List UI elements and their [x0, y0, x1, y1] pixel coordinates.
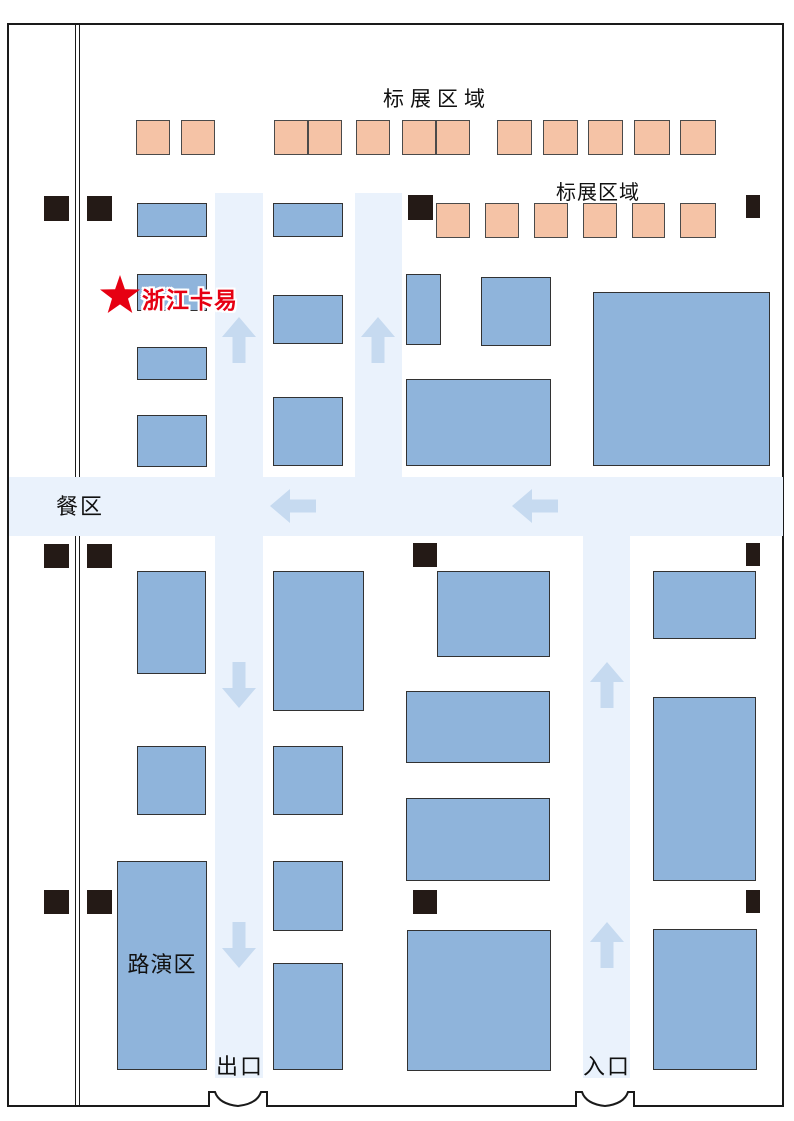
aisle	[355, 193, 402, 477]
standard-booth	[436, 203, 470, 238]
pillar	[44, 196, 69, 221]
exhibitor-booth	[406, 379, 551, 466]
exhibitor-booth	[406, 274, 441, 345]
standard-booth-area-label-right: 标展区域	[556, 176, 640, 205]
partition-double-line-top	[75, 23, 80, 477]
aisle	[215, 193, 263, 477]
exhibitor-booth	[273, 861, 343, 931]
standard-booth-area-label-top: 标展区域	[383, 83, 491, 113]
exhibitor-booth	[137, 347, 207, 380]
exhibitor-booth	[273, 746, 343, 815]
standard-booth	[680, 120, 716, 155]
highlight-company-label: 浙江卡易	[142, 281, 238, 315]
entrance-label: 入口	[583, 1049, 631, 1081]
exhibitor-booth	[137, 746, 206, 815]
exhibitor-booth	[437, 571, 550, 657]
standard-booth	[274, 120, 308, 155]
exhibitor-booth	[593, 292, 770, 466]
pillar	[87, 890, 112, 914]
standard-booth	[356, 120, 390, 155]
standard-booth	[497, 120, 532, 155]
standard-booth	[436, 120, 470, 155]
standard-booth	[136, 120, 170, 155]
exhibitor-booth	[406, 798, 550, 881]
standard-booth	[402, 120, 436, 155]
star-icon	[96, 271, 144, 317]
pillar	[746, 890, 760, 913]
exhibitor-booth	[273, 295, 343, 344]
standard-booth	[588, 120, 623, 155]
exhibitor-booth	[406, 691, 550, 763]
pillar	[746, 543, 760, 566]
standard-booth	[308, 120, 342, 155]
aisle	[215, 536, 263, 1078]
partition-double-line-bottom	[75, 536, 80, 1106]
pillar	[87, 196, 112, 221]
exit-label: 出口	[216, 1049, 264, 1081]
exhibitor-booth	[137, 415, 207, 467]
standard-booth	[543, 120, 578, 155]
exhibitor-booth	[273, 963, 343, 1070]
pillar	[408, 195, 433, 220]
exhibitor-booth	[481, 277, 551, 346]
exhibitor-booth	[653, 929, 757, 1070]
aisle	[583, 536, 630, 1078]
pillar	[44, 890, 69, 914]
standard-booth	[485, 203, 519, 238]
exhibitor-booth	[407, 930, 551, 1071]
exhibitor-booth	[653, 697, 756, 881]
standard-booth	[632, 203, 665, 238]
exhibitor-booth	[273, 397, 343, 466]
exhibitor-booth	[273, 571, 364, 711]
pillar	[44, 544, 69, 568]
pillar	[87, 544, 112, 568]
aisle	[9, 477, 783, 536]
dining-area-label: 餐区	[56, 489, 104, 521]
pillar	[746, 195, 760, 218]
exhibition-floor-plan: 标展区域 标展区域 餐区 路演区 出口 入口 浙江卡易	[0, 0, 794, 1121]
exhibitor-booth	[137, 571, 206, 674]
standard-booth	[583, 203, 617, 238]
exhibitor-booth	[653, 571, 756, 639]
pillar	[413, 890, 437, 914]
standard-booth	[181, 120, 215, 155]
exhibitor-booth	[273, 203, 343, 237]
exhibitor-booth	[137, 203, 207, 237]
standard-booth	[634, 120, 670, 155]
standard-booth	[534, 203, 568, 238]
standard-booth	[680, 203, 716, 238]
roadshow-area-label: 路演区	[117, 947, 207, 979]
pillar	[413, 543, 437, 567]
